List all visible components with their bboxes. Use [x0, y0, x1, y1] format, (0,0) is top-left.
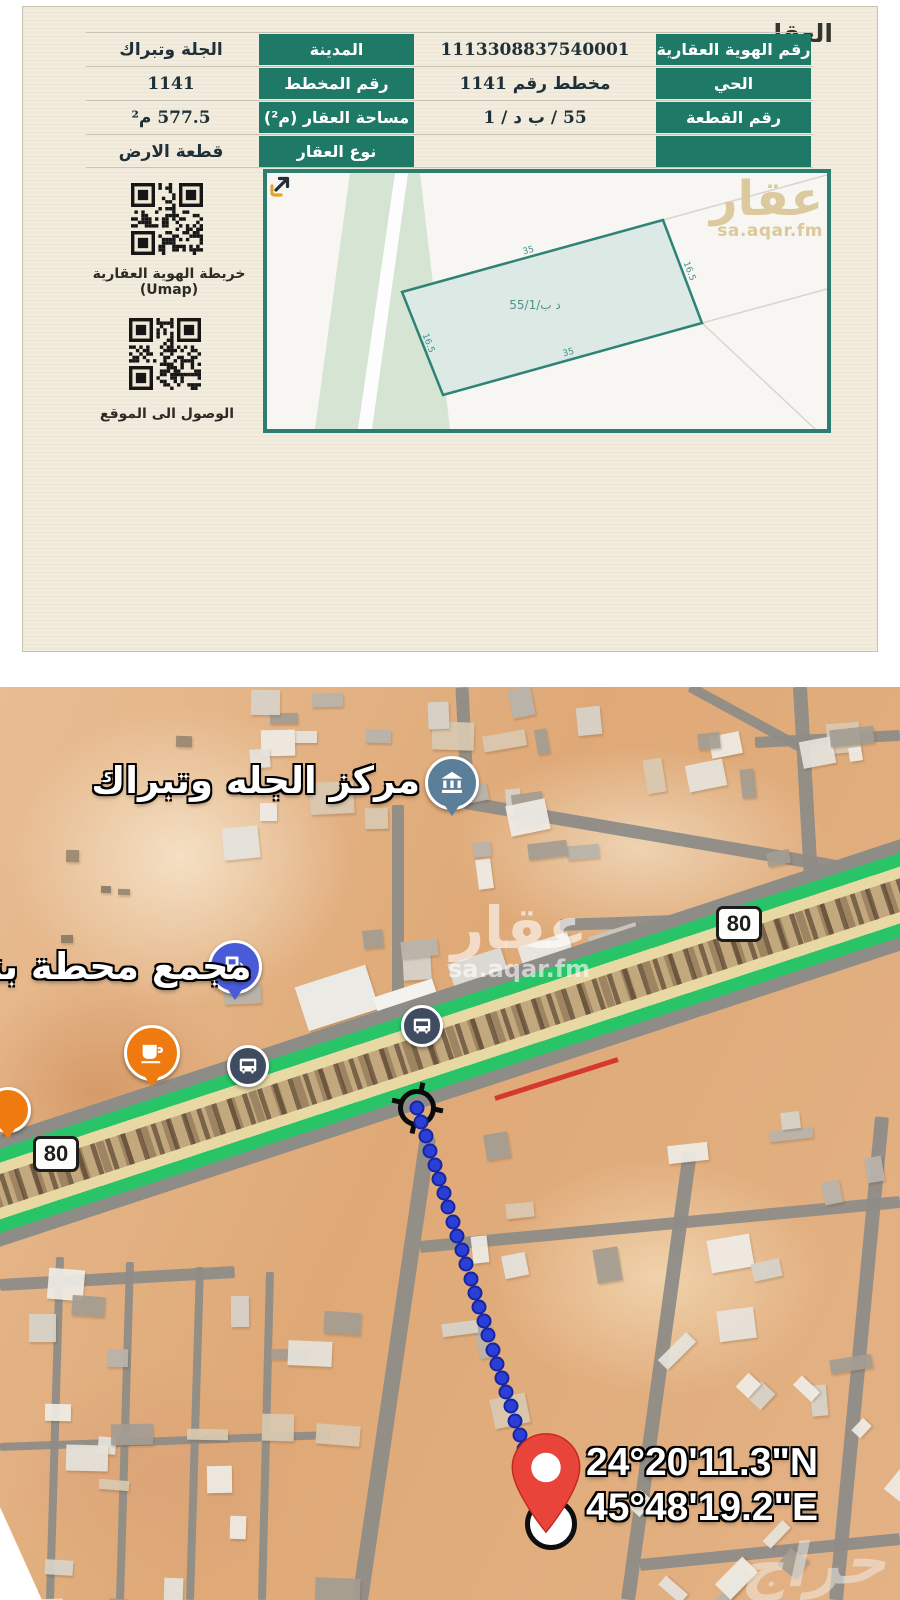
coffee-cup-icon [138, 1039, 166, 1067]
map-building [323, 1311, 362, 1336]
map-building [107, 1349, 128, 1367]
plot-number-label: 55/1/د ب [509, 298, 560, 312]
table-divider [86, 167, 813, 168]
header-empty [656, 136, 811, 167]
map-building [99, 1479, 129, 1492]
poi-marker-center[interactable] [425, 756, 479, 810]
map-building [667, 1142, 708, 1164]
route-dot [508, 1413, 523, 1428]
map-building [294, 731, 317, 743]
map-building [697, 732, 720, 750]
map-building [366, 729, 391, 744]
route-dot [481, 1328, 496, 1343]
map-building [884, 1465, 900, 1502]
target-tick [392, 1098, 403, 1105]
route-dot [432, 1172, 447, 1187]
map-building [658, 1576, 688, 1600]
qr-code-location [129, 318, 201, 390]
route-dot [494, 1370, 509, 1385]
screenshot-root: العقار رقم الهوية العقارية 1113308837540… [0, 0, 900, 1600]
map-building [287, 1340, 332, 1367]
bus-icon [237, 1055, 259, 1077]
map-building [475, 858, 494, 890]
map-building [768, 1127, 813, 1143]
route-dot [472, 1299, 487, 1314]
value-area: 577.5 م² [86, 102, 256, 133]
route-dot [459, 1257, 474, 1272]
value-plan-number: 1141 [86, 68, 256, 99]
map-building [527, 840, 568, 861]
route-dot [445, 1214, 460, 1229]
destination-pin[interactable] [503, 1431, 589, 1535]
map-building [473, 841, 492, 858]
route-dot [423, 1143, 438, 1158]
route-dot [427, 1157, 442, 1172]
value-property-type: قطعة الارض [86, 136, 256, 167]
map-building [206, 1466, 231, 1494]
map-building [717, 1307, 758, 1342]
route-dot [485, 1342, 500, 1357]
poi-station-label: مجمع محطة بتر [0, 945, 252, 988]
map-building [118, 889, 130, 896]
map-building [739, 768, 756, 798]
map-building [684, 758, 727, 793]
map-building [780, 1111, 801, 1130]
coordinates-readout: 24°20'11.3"N 45°48'19.2"E [586, 1440, 818, 1530]
map-building [45, 1403, 71, 1420]
satellite-map[interactable]: عقار sa.aqar.fm 80 80 مركز الجله وتبراك … [0, 687, 900, 1600]
route-dot [490, 1356, 505, 1371]
map-building [427, 701, 449, 729]
map-building [471, 1236, 490, 1264]
poi-marker-bus-stop[interactable] [227, 1045, 269, 1087]
map-building [101, 885, 112, 892]
corner-watermark: حراج [737, 1526, 898, 1600]
map-road [352, 1136, 436, 1600]
route-dot [454, 1243, 469, 1258]
route-dot [436, 1186, 451, 1201]
map-building [643, 757, 667, 793]
map-building [29, 1314, 56, 1342]
poi-center-label: مركز الجله وتبراك [91, 759, 420, 802]
route-80-shield: 80 [716, 906, 762, 942]
map-building [221, 825, 260, 860]
museum-icon [437, 768, 467, 798]
value-district: مخطط رقم 1141 [417, 68, 653, 99]
map-building [61, 935, 73, 944]
map-building [45, 1559, 74, 1576]
map-building [312, 693, 343, 707]
map-building [483, 1132, 511, 1162]
map-building [400, 938, 438, 959]
map-building [848, 746, 863, 761]
header-plot-number: رقم القطعة [656, 102, 811, 133]
header-district: الحي [656, 68, 811, 99]
map-building [66, 1445, 109, 1472]
header-plan-number: رقم المخطط [259, 68, 414, 99]
qr-umap-label: خريطة الهوية العقارية (Umap) [63, 266, 275, 298]
qr-code-umap [131, 183, 203, 255]
coordinate-latitude: 24°20'11.3"N [586, 1440, 818, 1485]
map-building [508, 687, 536, 719]
poi-marker-bus-stop[interactable] [401, 1005, 443, 1047]
map-edge-wedge [0, 1507, 42, 1600]
map-building [365, 808, 388, 829]
poi-marker-cafe[interactable] [124, 1025, 180, 1081]
map-building [260, 803, 277, 822]
map-building [481, 729, 526, 752]
map-building [251, 690, 280, 715]
table-divider [86, 32, 813, 33]
route-dot [503, 1399, 518, 1414]
map-building [187, 1429, 228, 1441]
map-road [392, 805, 404, 1017]
map-building [362, 929, 383, 949]
qr-location-label: الوصول الى الموقع [61, 406, 273, 422]
map-building [231, 1296, 250, 1327]
route-dot [410, 1101, 425, 1116]
header-property-id: رقم الهوية العقارية [656, 34, 811, 65]
map-building [750, 1258, 782, 1282]
open-location-link-icon[interactable] [267, 173, 293, 199]
map-building [706, 1234, 754, 1274]
map-building [593, 1246, 623, 1284]
value-empty [417, 136, 653, 167]
coordinate-longitude: 45°48'19.2"E [586, 1485, 818, 1530]
map-building [829, 726, 875, 748]
header-property-type: نوع العقار [259, 136, 414, 167]
plot-plan-drawing: 35 35 16.5 16.5 55/1/د ب [267, 173, 827, 429]
property-document-card: العقار رقم الهوية العقارية 1113308837540… [22, 6, 878, 652]
route-dot [499, 1385, 514, 1400]
value-city: الجلة وتبراك [86, 34, 256, 65]
map-building [176, 736, 193, 748]
map-building [261, 1413, 293, 1441]
map-building [164, 1577, 183, 1600]
route-dot [476, 1314, 491, 1329]
route-dot [450, 1228, 465, 1243]
route-dot [418, 1129, 433, 1144]
value-plot-number: 55 / ب د / 1 [417, 102, 653, 133]
header-area: مساحة العقار (م²) [259, 102, 414, 133]
map-building [315, 1423, 360, 1446]
map-building [110, 1423, 152, 1444]
bus-icon [411, 1015, 433, 1037]
header-city: المدينة [259, 34, 414, 65]
value-property-id: 1113308837540001 [417, 34, 653, 65]
map-building [314, 1577, 360, 1600]
map-building [534, 728, 550, 755]
map-building [821, 1180, 843, 1206]
route-80-shield: 80 [33, 1136, 79, 1172]
plot-plan-panel[interactable]: 35 35 16.5 16.5 55/1/د ب عقار sa.aqar.fm [263, 169, 831, 433]
route-dot [414, 1115, 429, 1130]
map-building [442, 1320, 480, 1338]
map-building [230, 1516, 247, 1540]
map-building [501, 1252, 529, 1279]
map-building [505, 1202, 534, 1220]
map-building [66, 850, 79, 862]
map-building [71, 1295, 105, 1317]
map-building [567, 844, 600, 861]
map-building [576, 706, 603, 737]
map-building [270, 713, 298, 724]
route-dot [463, 1271, 478, 1286]
route-dot [441, 1200, 456, 1215]
property-table: رقم الهوية العقارية 1113308837540001 الم… [86, 34, 811, 167]
map-road [46, 1257, 64, 1600]
route-dot [467, 1285, 482, 1300]
